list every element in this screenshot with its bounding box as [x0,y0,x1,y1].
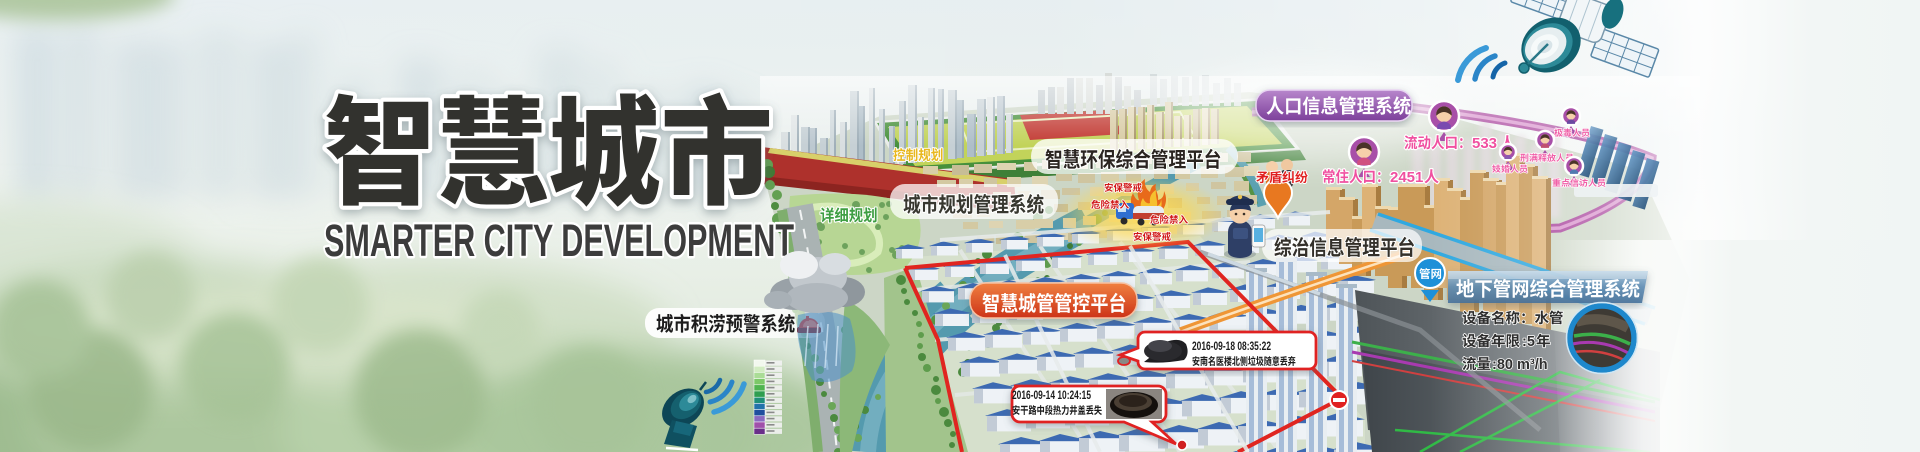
svg-text:SMARTER CITY DEVELOPMENT: SMARTER CITY DEVELOPMENT [324,215,794,266]
svg-text:2016-09-14 10:24:15: 2016-09-14 10:24:15 [1012,388,1091,402]
svg-text::80 m³/h: :80 m³/h [1492,357,1548,373]
svg-text::5: :5 [1522,334,1535,350]
svg-text:2451: 2451 [1390,169,1423,186]
svg-text:533: 533 [1472,135,1497,152]
svg-text:2016-09-18 08:35:22: 2016-09-18 08:35:22 [1192,339,1271,353]
